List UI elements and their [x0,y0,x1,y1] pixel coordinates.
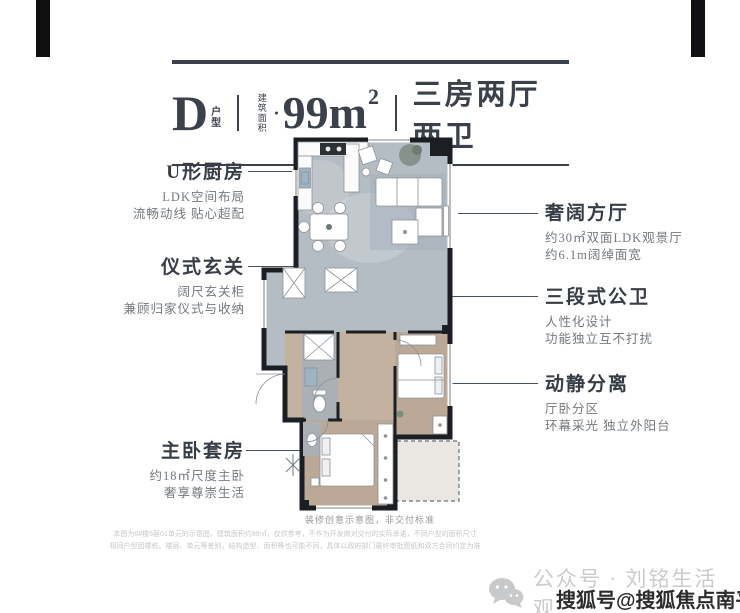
tv-console-icon [444,206,449,236]
plant-icon [397,411,404,418]
annotation-line: 流畅动线 贴心超配 [33,206,245,223]
annotation-living-hall: 奢阔方厅 约30㎡双面LDK观景厅 约6.1m阔绰面宽 [545,198,735,264]
annotation-line: 厅卧分区 [545,401,735,418]
header-divider [237,95,239,131]
unit-stack-top: 户 [211,107,221,118]
annotation-kitchen: U形厨房 LDK空间布局 流畅动线 贴心超配 [33,157,245,223]
annotation-title: 主卧套房 [33,436,245,463]
toilet-icon [314,396,326,412]
annotation-line: 人性化设计 [545,314,735,331]
annotation-title: 仪式玄关 [33,252,245,279]
disclaimer-line-1: 本图为6#楼5层01单元的示意图，建筑面积约99㎡，仅供参考，不作为开发商对交付… [80,529,510,540]
annotation-line: 功能独立互不打扰 [545,331,735,348]
wechat-icon [487,577,525,609]
annotation-zoning: 动静分离 厅卧分区 环幕采光 独立外阳台 [545,369,735,435]
annotation-line: 奢享尊崇生活 [33,485,245,502]
annotation-master-suite: 主卧套房 约18㎡尺度主卧 奢享尊崇生活 [33,436,245,502]
unit-stack-bottom: 型 [211,118,221,129]
annotation-line: 约30㎡双面LDK观景厅 [545,230,735,247]
annotation-line: 环幕采光 独立外阳台 [545,418,735,435]
area-stack-top: 建筑 [258,93,273,113]
disclaimer-line-2: 相同户型因楼栋、楼层、单元等差别，结构造型、面积等也可能不同，具体以政府部门最终… [80,541,510,552]
annotation-bathroom: 三段式公卫 人性化设计 功能独立互不打扰 [545,282,735,348]
area-bullet: ● [274,109,278,117]
washbasin-icon [305,368,317,386]
annotation-line: LDK空间布局 [33,189,245,206]
dresser-icon [400,335,436,345]
balcony-dashed-outline [397,441,459,501]
annotation-line: 约18㎡尺度主卧 [33,468,245,485]
floor-plan [250,128,475,518]
unit-type-stack: 户 型 [211,107,221,129]
sofa-icon [376,178,442,206]
annotation-title: 三段式公卫 [545,282,735,309]
stove-icon [320,143,346,155]
floorplan-poster: D 户 型 建筑 面积 ● 99m 2 三房两厅两卫 U形厨房 LDK空间布局 … [0,0,740,613]
north-indicator [286,454,300,476]
annotation-title: 奢阔方厅 [545,198,735,225]
frame-corner-right [691,0,705,57]
annotation-entry: 仪式玄关 阔尺玄关柜 兼顾归家仪式与收纳 [33,252,245,318]
sohu-watermark: 搜狐号@搜狐焦点南平站 [556,584,740,613]
header-divider-2 [395,95,397,131]
area-superscript: 2 [368,84,379,110]
annotation-line: 约6.1m阔绰面宽 [545,247,735,264]
annotation-title: U形厨房 [33,157,245,184]
annotation-title: 动静分离 [545,369,735,396]
annotation-line: 兼顾归家仪式与收纳 [33,301,245,318]
unit-letter: D [172,89,208,137]
standard-note: 装修创意示意图，非交付标准 [255,513,485,526]
annotation-line: 阔尺玄关柜 [33,284,245,301]
frame-corner-left [36,0,50,57]
area-label-stack: 建筑 面积 [258,93,273,133]
